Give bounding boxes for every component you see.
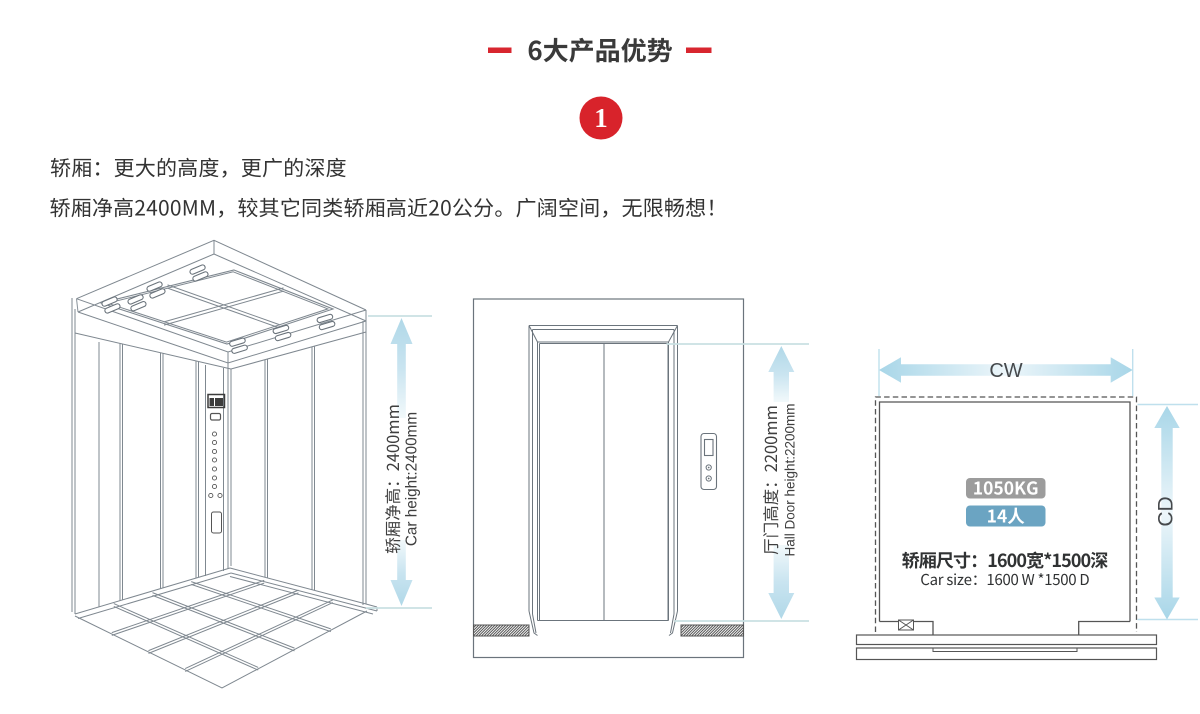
svg-text:CW: CW: [989, 360, 1022, 382]
svg-text:1: 1: [594, 103, 608, 133]
svg-text:Car height:2400mm: Car height:2400mm: [404, 412, 421, 546]
svg-text:Hall Door height:2200mm: Hall Door height:2200mm: [783, 403, 798, 556]
svg-text:CD: CD: [1155, 496, 1178, 526]
